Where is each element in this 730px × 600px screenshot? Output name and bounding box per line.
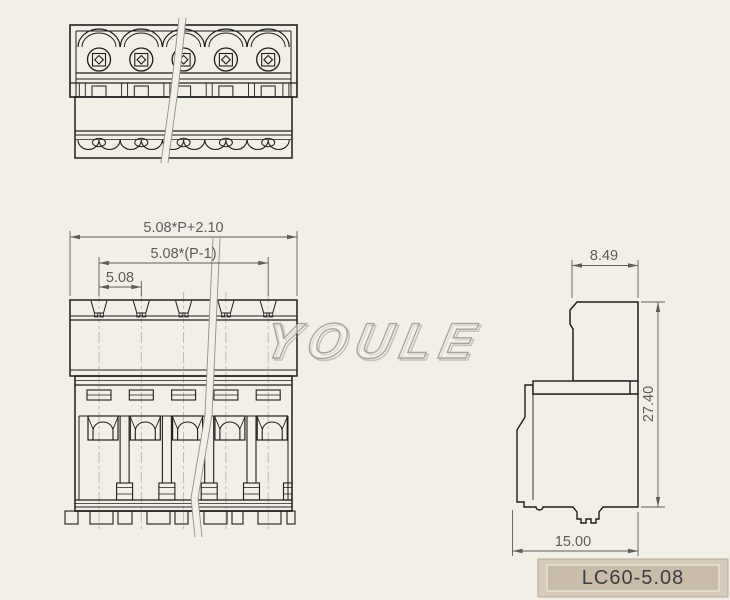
dim-pitch-label: 5.08 — [106, 270, 134, 286]
part-number: LC60-5.08 — [582, 567, 684, 589]
front-view-feet — [65, 511, 295, 524]
front-view — [65, 292, 297, 532]
dim-pitch-span-label: 5.08*(P-1) — [150, 246, 216, 262]
side-view-flange — [533, 381, 630, 394]
break-gap-front-view — [191, 238, 220, 537]
technical-drawing-canvas: 5.08*P+2.10 5.08*(P-1) 5.08 8.49 — [0, 0, 730, 600]
watermark-text: YOULE — [260, 313, 489, 369]
front-view-centerlines — [99, 292, 268, 532]
dim-base-width: 15.00 — [513, 510, 639, 556]
dim-height: 27.40 — [641, 302, 665, 507]
watermark: YOULE YOULE — [259, 313, 491, 371]
side-view — [517, 302, 638, 523]
top-view — [70, 25, 297, 158]
drawing-sheet: 5.08*P+2.10 5.08*(P-1) 5.08 8.49 — [0, 0, 730, 600]
dim-pitch: 5.08 — [99, 270, 141, 296]
dim-plug-width: 8.49 — [572, 248, 638, 298]
top-view-rear-clamps — [78, 138, 289, 149]
title-block: LC60-5.08 — [538, 559, 728, 597]
front-view-cells — [87, 301, 287, 500]
dim-overall-width-label: 5.08*P+2.10 — [143, 220, 223, 236]
dim-plug-width-label: 8.49 — [590, 248, 618, 264]
dim-height-label: 27.40 — [641, 386, 657, 422]
dim-base-width-label: 15.00 — [555, 534, 591, 550]
